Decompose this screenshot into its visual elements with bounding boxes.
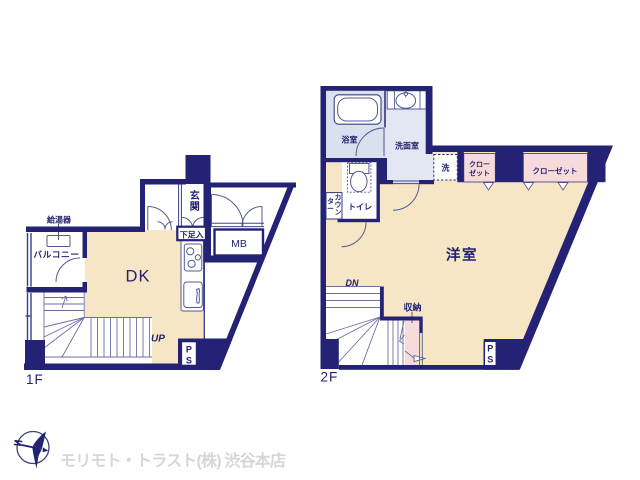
svg-text:MB: MB (231, 238, 247, 250)
svg-text:収納: 収納 (403, 302, 421, 313)
svg-text:1F: 1F (26, 372, 44, 387)
svg-text:S: S (487, 355, 493, 365)
svg-text:洗面室: 洗面室 (395, 141, 419, 151)
svg-text:給湯器: 給湯器 (47, 215, 72, 225)
svg-text:カ: カ (335, 194, 342, 202)
svg-text:DK: DK (126, 268, 151, 286)
svg-text:ン: ン (335, 209, 342, 217)
svg-text:関: 関 (190, 201, 200, 213)
svg-text:S: S (186, 356, 192, 366)
svg-text:DN: DN (346, 278, 359, 288)
svg-text:下足入: 下足入 (180, 231, 204, 240)
svg-text:P: P (186, 345, 192, 355)
svg-text:トイレ: トイレ (348, 203, 372, 212)
svg-text:タ: タ (327, 197, 334, 206)
svg-text:UP: UP (151, 334, 165, 345)
svg-text:P: P (487, 344, 493, 354)
svg-text:洋室: 洋室 (446, 246, 478, 264)
svg-text:洗: 洗 (442, 163, 450, 173)
svg-text:ウ: ウ (335, 200, 342, 209)
svg-text:玄: 玄 (190, 189, 200, 202)
svg-text:2F: 2F (321, 370, 339, 385)
svg-text:モリモト・トラスト(株) 渋谷本店: モリモト・トラスト(株) 渋谷本店 (60, 451, 286, 470)
svg-text:クロー: クロー (469, 160, 490, 169)
svg-text:バルコニー: バルコニー (33, 250, 79, 260)
svg-text:ー: ー (327, 206, 334, 213)
svg-text:浴室: 浴室 (342, 135, 358, 145)
svg-text:クローゼット: クローゼット (533, 166, 578, 176)
svg-text:ゼット: ゼット (469, 169, 490, 178)
